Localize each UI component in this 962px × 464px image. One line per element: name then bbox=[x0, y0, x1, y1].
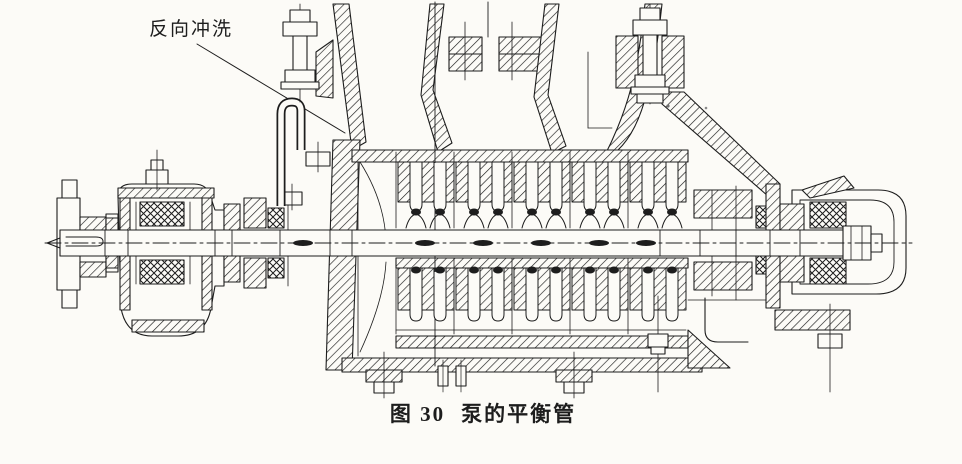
annotation-reverse-flush: 反向冲洗 bbox=[149, 14, 233, 41]
paper-speck bbox=[666, 104, 669, 107]
figure-number: 图 30 bbox=[390, 402, 445, 426]
annotation-label: 反向冲洗 bbox=[149, 19, 233, 40]
figure-title: 泵的平衡管 bbox=[461, 402, 576, 426]
figure-caption: 图 30泵的平衡管 bbox=[283, 398, 683, 428]
figure-panel: 反向冲洗 图 30泵的平衡管 bbox=[0, 0, 962, 464]
pump-cross-section-drawing bbox=[0, 0, 962, 464]
paper-speck bbox=[705, 107, 708, 110]
